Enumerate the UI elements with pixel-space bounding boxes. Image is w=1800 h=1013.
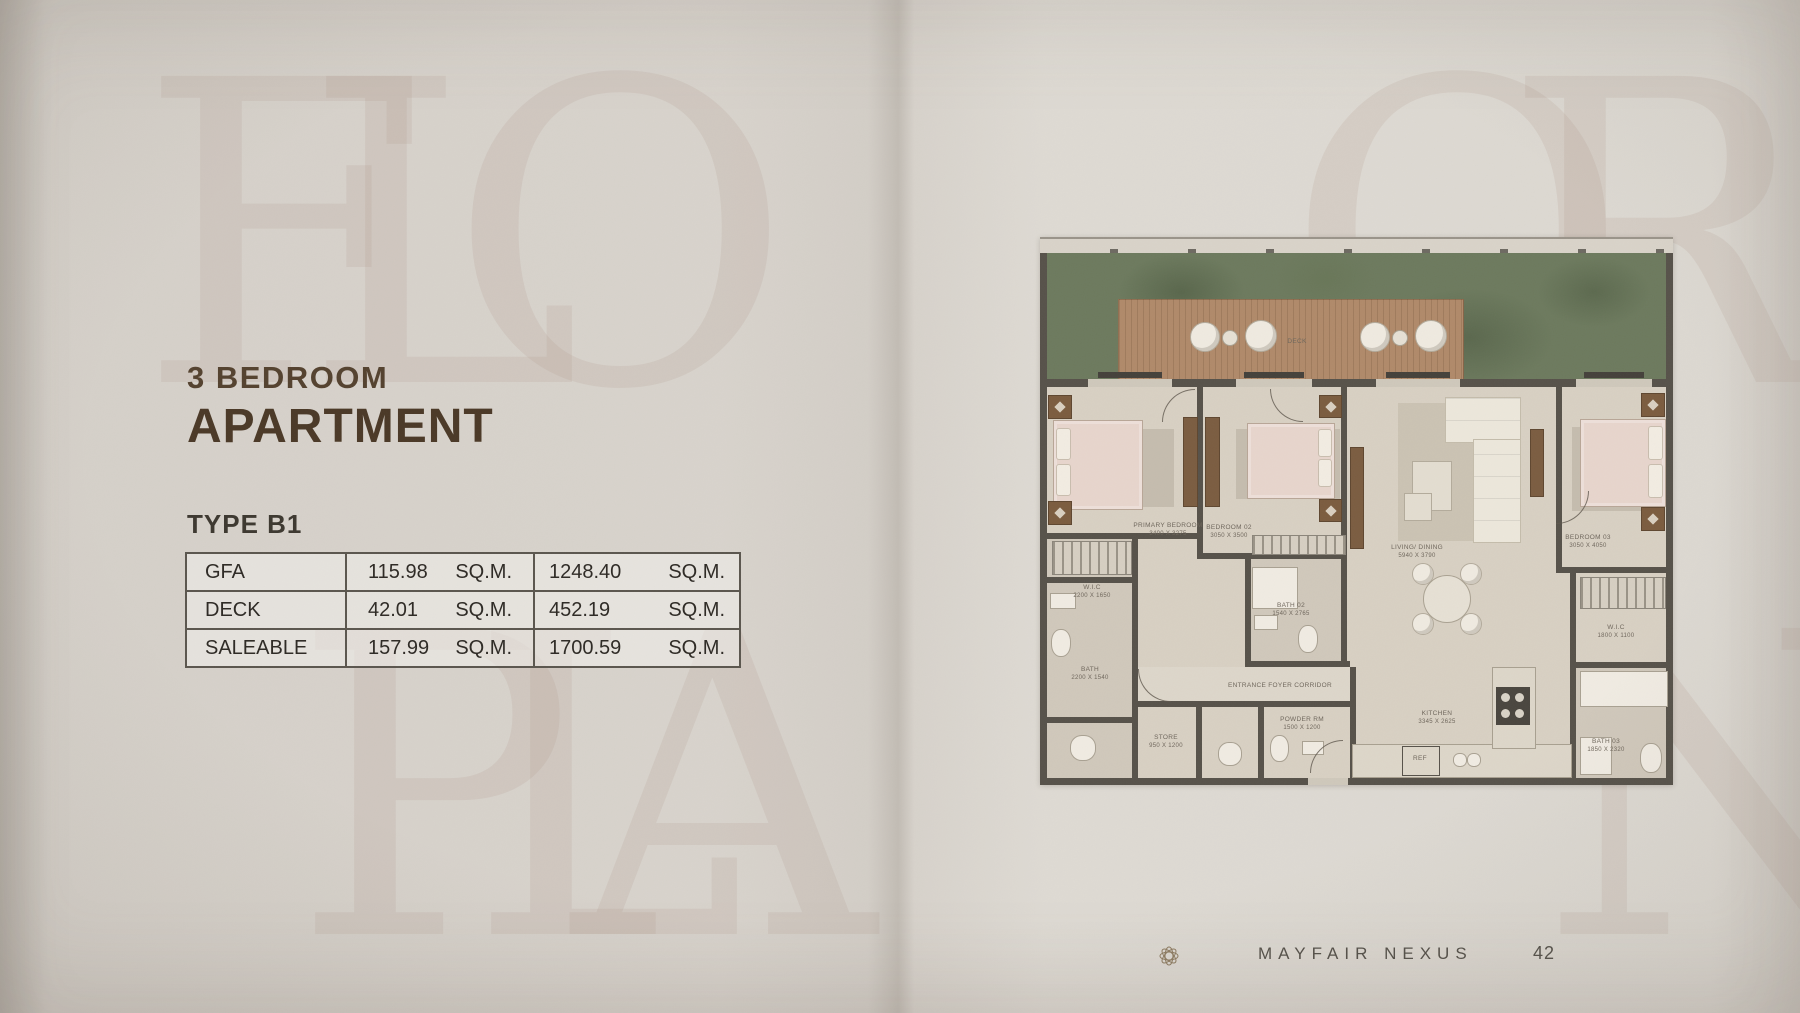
area-value: 1700.59 — [549, 637, 621, 660]
room-label: BEDROOM 023050 x 3500 — [1184, 523, 1274, 541]
kitchen-sink — [1467, 753, 1481, 767]
area-row-label: DECK — [186, 591, 346, 629]
shower-drain — [1070, 735, 1096, 761]
wall — [1132, 701, 1356, 707]
door-opening — [1088, 379, 1172, 387]
washer — [1218, 742, 1242, 766]
area-alt-cell: 1700.59SQ.M. — [534, 629, 740, 667]
area-value: 42.01 — [368, 599, 418, 622]
pillow — [1648, 426, 1663, 460]
sofa — [1445, 397, 1521, 443]
pillow — [1056, 428, 1071, 460]
wall — [1245, 661, 1350, 667]
area-unit: SQ.M. — [455, 599, 512, 622]
room-label: BATH 031850 x 2320 — [1561, 737, 1651, 755]
dining-table — [1423, 575, 1471, 623]
area-alt-cell: 452.19SQ.M. — [534, 591, 740, 629]
area-unit: SQ.M. — [668, 561, 725, 584]
side-table — [1404, 493, 1432, 521]
area-value: 452.19 — [549, 599, 610, 622]
deck-chair — [1245, 320, 1277, 352]
area-value: 115.98 — [368, 561, 428, 584]
wall — [1576, 662, 1673, 668]
nightstand — [1048, 395, 1072, 419]
unit-type-label: TYPE B1 — [187, 509, 747, 540]
toilet — [1298, 625, 1318, 653]
room-label: POWDER RM1500 x 1200 — [1257, 715, 1347, 733]
sliding-door — [1244, 372, 1304, 378]
table-row: DECK 42.01SQ.M. 452.19SQ.M. — [186, 591, 740, 629]
area-value: 1248.40 — [549, 561, 621, 584]
door-opening — [1376, 379, 1460, 387]
pillow — [1056, 464, 1071, 496]
wall — [1040, 253, 1047, 785]
wall — [1040, 778, 1673, 785]
room-label: BATH 021540 x 2765 — [1246, 601, 1336, 619]
wardrobe — [1205, 417, 1220, 507]
deck-chair — [1360, 322, 1390, 352]
area-metric-cell: 157.99SQ.M. — [346, 629, 534, 667]
area-metric-cell: 115.98SQ.M. — [346, 553, 534, 591]
room-label: BATH2200 x 1540 — [1045, 665, 1135, 683]
wall — [1047, 717, 1138, 723]
wall — [1341, 387, 1347, 667]
room-label-deck: DECK — [1252, 337, 1342, 346]
area-value: 157.99 — [368, 637, 429, 660]
sliding-door — [1098, 372, 1162, 378]
table-row: GFA 115.98SQ.M. 1248.40SQ.M. — [186, 553, 740, 591]
area-alt-cell: 1248.40SQ.M. — [534, 553, 740, 591]
walk-in-closet — [1580, 577, 1666, 609]
wardrobe — [1183, 417, 1198, 507]
page-title: APARTMENT — [187, 399, 747, 454]
pillow — [1318, 459, 1332, 487]
toilet — [1270, 735, 1289, 762]
room-label: ENTRANCE FOYER CORRIDOR — [1210, 681, 1350, 690]
shower — [1580, 671, 1668, 707]
tv-console — [1530, 429, 1544, 497]
deck-side-table — [1222, 330, 1238, 346]
page-number: 42 — [1533, 943, 1555, 964]
table-row: SALEABLE 157.99SQ.M. 1700.59SQ.M. — [186, 629, 740, 667]
area-unit: SQ.M. — [668, 599, 725, 622]
area-row-label: GFA — [186, 553, 346, 591]
entrance-door-opening — [1308, 778, 1348, 785]
room-label: LIVING/ DINING5940 x 3790 — [1372, 543, 1462, 561]
room-label: W.I.C2200 x 1650 — [1047, 583, 1137, 601]
brochure-spread: F L O O R P L A N 3 BEDROOM APARTMENT TY… — [0, 0, 1800, 1013]
area-metric-cell: 42.01SQ.M. — [346, 591, 534, 629]
pillow — [1318, 429, 1332, 457]
room-label: STORE950 x 1200 — [1121, 733, 1211, 751]
sofa — [1473, 439, 1521, 543]
brand-name: MAYFAIR NEXUS — [1258, 944, 1473, 964]
sliding-door — [1386, 372, 1450, 378]
nightstand — [1641, 393, 1665, 417]
nightstand — [1641, 507, 1665, 531]
area-table: GFA 115.98SQ.M. 1248.40SQ.M. DECK 42.01S… — [185, 552, 741, 668]
nightstand — [1319, 395, 1342, 418]
deck-side-table — [1392, 330, 1408, 346]
room-label: KITCHEN3345 x 2625 — [1392, 709, 1482, 727]
pillow — [1648, 464, 1663, 498]
door-opening — [1236, 379, 1312, 387]
unit-summary-panel: 3 BEDROOM APARTMENT TYPE B1 GFA 115.98SQ… — [187, 360, 747, 668]
nightstand — [1048, 501, 1072, 525]
room-label: BEDROOM 033050 x 4050 — [1543, 533, 1633, 551]
deck-chair — [1415, 320, 1447, 352]
walk-in-closet — [1052, 541, 1132, 575]
toilet — [1051, 629, 1071, 657]
room-label: REF — [1375, 754, 1465, 763]
stove — [1496, 687, 1530, 725]
deck-chair — [1190, 322, 1220, 352]
area-unit: SQ.M. — [668, 637, 725, 660]
area-unit: SQ.M. — [455, 561, 512, 584]
tv-console — [1350, 447, 1364, 549]
sliding-door — [1584, 372, 1644, 378]
door-opening — [1576, 379, 1652, 387]
unit-kicker: 3 BEDROOM — [187, 360, 747, 396]
room-label: W.I.C1800 x 1100 — [1571, 623, 1661, 641]
rosette-icon — [1152, 938, 1186, 974]
area-row-label: SALEABLE — [186, 629, 346, 667]
area-unit: SQ.M. — [455, 637, 512, 660]
floor-plan: DECK — [1040, 237, 1673, 785]
nightstand — [1319, 499, 1342, 522]
